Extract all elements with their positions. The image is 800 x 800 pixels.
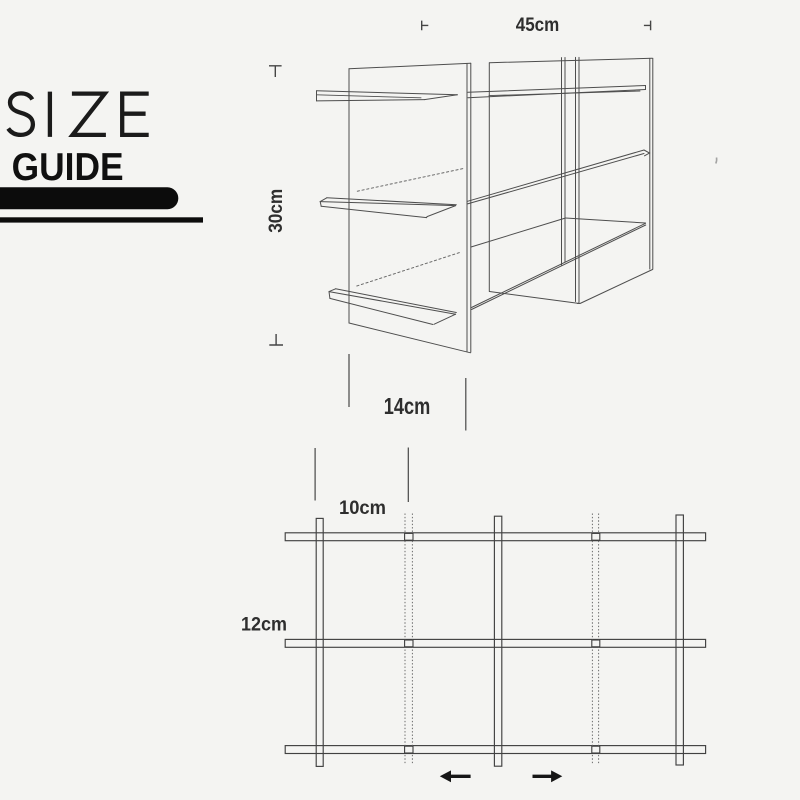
svg-text:GUIDE: GUIDE [12,146,124,189]
svg-text:12cm: 12cm [241,615,287,636]
svg-text:45cm: 45cm [516,14,560,36]
svg-text:14cm: 14cm [384,393,431,419]
svg-text:10cm: 10cm [339,498,386,519]
svg-text:30cm: 30cm [265,189,287,233]
